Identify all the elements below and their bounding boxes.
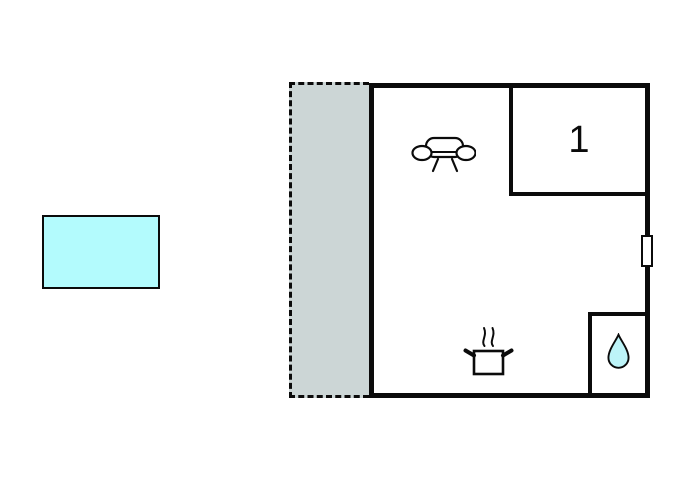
pool — [42, 215, 160, 289]
sofa-icon — [410, 135, 476, 173]
door-marker — [641, 235, 653, 267]
terrace — [289, 82, 369, 398]
room-1: 1 — [509, 88, 645, 196]
cooking-pot-icon — [461, 321, 515, 379]
floor-plan-canvas: 1 — [0, 0, 700, 500]
water-drop-icon — [607, 333, 630, 376]
room-1-label: 1 — [568, 121, 589, 159]
bathroom — [588, 312, 645, 393]
